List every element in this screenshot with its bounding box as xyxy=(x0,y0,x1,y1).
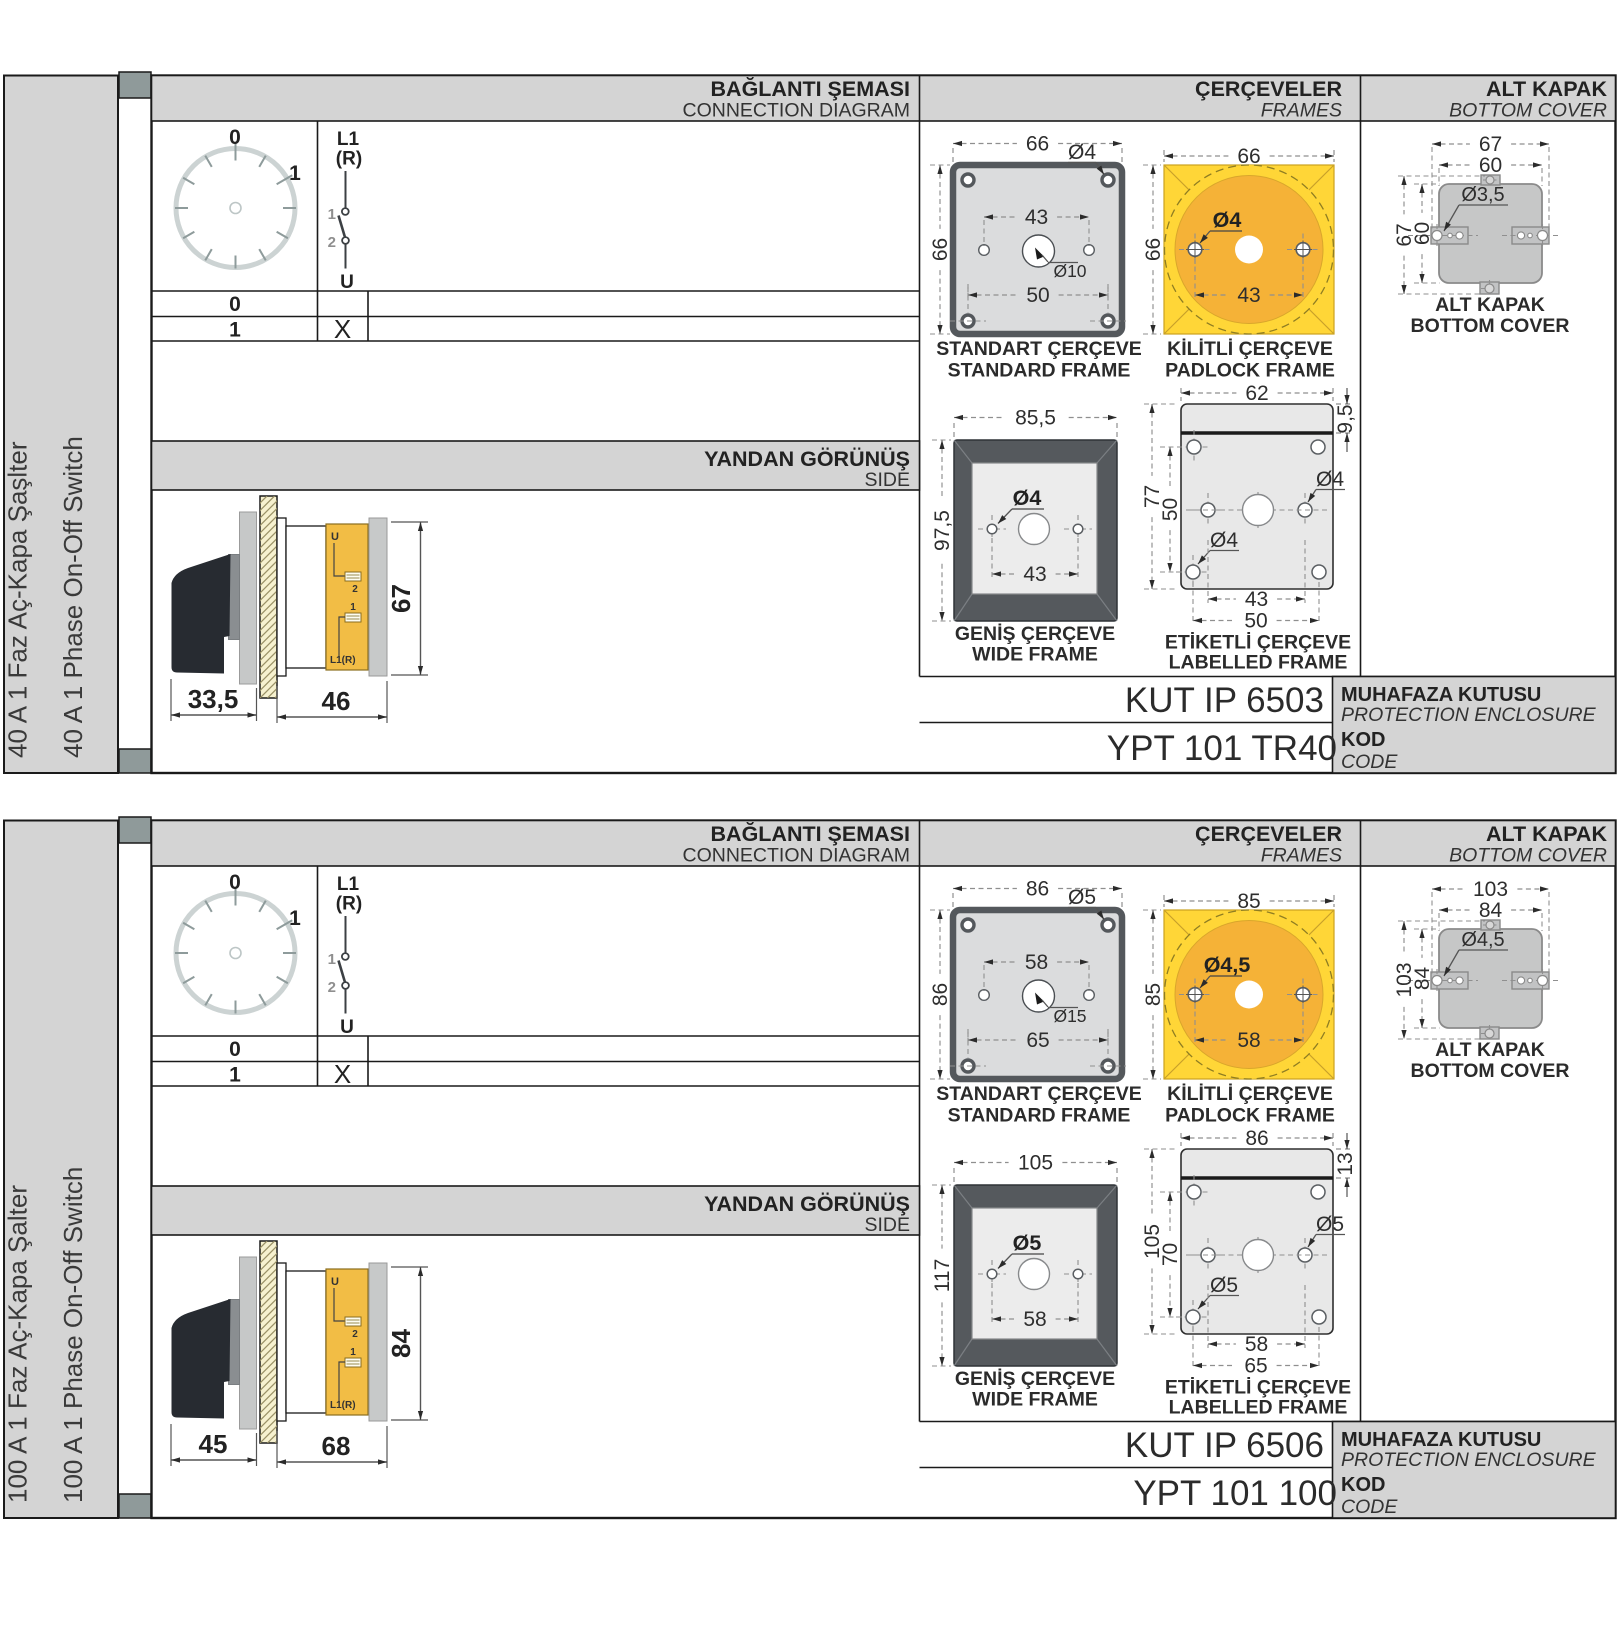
svg-text:Ø5: Ø5 xyxy=(1316,1213,1344,1236)
svg-text:1: 1 xyxy=(328,206,336,223)
svg-text:1: 1 xyxy=(229,1064,241,1087)
svg-text:50: 50 xyxy=(1159,498,1182,521)
svg-text:58: 58 xyxy=(1025,951,1048,974)
svg-text:Ø5: Ø5 xyxy=(1013,1231,1042,1255)
svg-text:LABELLED FRAME: LABELLED FRAME xyxy=(1169,1397,1348,1419)
svg-text:Ø15: Ø15 xyxy=(1053,1006,1086,1026)
svg-text:U: U xyxy=(331,1276,339,1288)
svg-text:68: 68 xyxy=(322,1431,351,1461)
svg-text:2: 2 xyxy=(352,584,358,595)
svg-text:40 A 1 Phase On-Off Switch: 40 A 1 Phase On-Off Switch xyxy=(58,436,88,758)
svg-text:ÇERÇEVELER: ÇERÇEVELER xyxy=(1195,822,1342,846)
svg-text:(R): (R) xyxy=(336,149,362,170)
svg-text:CODE: CODE xyxy=(1341,1496,1398,1518)
svg-text:9,5: 9,5 xyxy=(1334,404,1357,433)
svg-text:BOTTOM COVER: BOTTOM COVER xyxy=(1449,100,1607,122)
svg-text:BOTTOM COVER: BOTTOM COVER xyxy=(1449,845,1607,867)
svg-text:65: 65 xyxy=(1244,1355,1267,1378)
svg-text:85,5: 85,5 xyxy=(1015,407,1056,430)
svg-text:67: 67 xyxy=(1479,133,1502,156)
svg-text:ALT KAPAK: ALT KAPAK xyxy=(1486,822,1607,846)
svg-text:GENİŞ ÇERÇEVE: GENİŞ ÇERÇEVE xyxy=(955,1367,1115,1390)
svg-text:LABELLED FRAME: LABELLED FRAME xyxy=(1169,652,1348,674)
svg-text:Ø10: Ø10 xyxy=(1053,261,1086,281)
svg-text:85: 85 xyxy=(1142,983,1165,1006)
svg-text:MUHAFAZA KUTUSU: MUHAFAZA KUTUSU xyxy=(1341,1429,1541,1451)
svg-text:84: 84 xyxy=(1479,899,1503,922)
svg-text:YPT 101 100: YPT 101 100 xyxy=(1133,1474,1337,1513)
svg-text:86: 86 xyxy=(1026,878,1049,901)
svg-text:1: 1 xyxy=(289,907,301,930)
svg-text:KUT IP 6506: KUT IP 6506 xyxy=(1125,1426,1324,1465)
svg-text:84: 84 xyxy=(386,1329,416,1358)
svg-text:40 A 1 Faz Aç-Kapa Şaşlter: 40 A 1 Faz Aç-Kapa Şaşlter xyxy=(3,441,33,758)
svg-text:KİLİTLİ ÇERÇEVE: KİLİTLİ ÇERÇEVE xyxy=(1167,1082,1333,1105)
svg-text:0: 0 xyxy=(229,871,241,894)
svg-text:U: U xyxy=(340,272,354,293)
svg-text:60: 60 xyxy=(1411,222,1434,245)
svg-text:PROTECTION ENCLOSURE: PROTECTION ENCLOSURE xyxy=(1341,704,1597,726)
svg-text:1: 1 xyxy=(229,319,241,342)
svg-text:50: 50 xyxy=(1244,610,1267,633)
svg-text:Ø4,5: Ø4,5 xyxy=(1461,929,1504,951)
svg-text:100 A 1 Faz Aç-Kapa Şalter: 100 A 1 Faz Aç-Kapa Şalter xyxy=(3,1185,33,1503)
svg-text:58: 58 xyxy=(1023,1308,1046,1331)
svg-text:58: 58 xyxy=(1237,1029,1260,1052)
svg-text:YPT 101 TR40: YPT 101 TR40 xyxy=(1107,729,1337,768)
svg-text:86: 86 xyxy=(929,983,952,1006)
svg-text:X: X xyxy=(334,314,351,344)
svg-text:MUHAFAZA KUTUSU: MUHAFAZA KUTUSU xyxy=(1341,684,1541,706)
svg-text:1: 1 xyxy=(328,951,336,968)
svg-text:0: 0 xyxy=(229,293,241,316)
svg-text:ALT KAPAK: ALT KAPAK xyxy=(1486,77,1607,101)
svg-text:(R): (R) xyxy=(336,894,362,915)
svg-text:46: 46 xyxy=(322,686,351,716)
svg-text:KUT IP 6503: KUT IP 6503 xyxy=(1125,681,1324,720)
svg-text:ÇERÇEVELER: ÇERÇEVELER xyxy=(1195,77,1342,101)
svg-text:ALT KAPAK: ALT KAPAK xyxy=(1435,294,1545,316)
svg-text:66: 66 xyxy=(1026,133,1049,156)
svg-text:66: 66 xyxy=(929,238,952,261)
svg-text:U: U xyxy=(331,531,339,543)
svg-text:L1: L1 xyxy=(337,874,360,895)
svg-text:117: 117 xyxy=(931,1259,954,1292)
svg-text:Ø3,5: Ø3,5 xyxy=(1461,184,1504,206)
svg-text:103: 103 xyxy=(1473,878,1508,901)
svg-text:Ø4: Ø4 xyxy=(1316,468,1344,491)
svg-text:BOTTOM COVER: BOTTOM COVER xyxy=(1411,315,1570,337)
svg-text:CONNECTION DIAGRAM: CONNECTION DIAGRAM xyxy=(682,100,910,122)
svg-text:PADLOCK FRAME: PADLOCK FRAME xyxy=(1165,360,1335,382)
svg-text:43: 43 xyxy=(1025,206,1048,229)
svg-text:1: 1 xyxy=(350,602,356,613)
svg-text:13: 13 xyxy=(1334,1152,1357,1175)
svg-text:X: X xyxy=(334,1059,351,1089)
svg-text:Ø5: Ø5 xyxy=(1210,1274,1238,1297)
svg-text:WIDE FRAME: WIDE FRAME xyxy=(972,644,1098,666)
svg-text:105: 105 xyxy=(1018,1152,1053,1175)
svg-text:Ø4,5: Ø4,5 xyxy=(1204,953,1251,977)
svg-text:YANDAN GÖRÜNÜŞ: YANDAN GÖRÜNÜŞ xyxy=(704,446,910,471)
svg-text:43: 43 xyxy=(1237,284,1260,307)
svg-text:CONNECTION DIAGRAM: CONNECTION DIAGRAM xyxy=(682,845,910,867)
svg-text:PADLOCK FRAME: PADLOCK FRAME xyxy=(1165,1105,1335,1127)
svg-text:45: 45 xyxy=(199,1429,228,1459)
svg-text:0: 0 xyxy=(229,1038,241,1061)
svg-text:SIDE: SIDE xyxy=(864,1214,910,1236)
svg-text:L1(R): L1(R) xyxy=(330,1400,356,1411)
svg-text:KOD: KOD xyxy=(1341,729,1385,751)
svg-text:2: 2 xyxy=(328,234,336,251)
svg-text:100 A 1 Phase On-Off Switch: 100 A 1 Phase On-Off Switch xyxy=(58,1167,88,1503)
svg-text:CODE: CODE xyxy=(1341,751,1398,773)
svg-text:97,5: 97,5 xyxy=(931,510,954,551)
svg-text:43: 43 xyxy=(1245,588,1268,611)
svg-text:BAĞLANTI ŞEMASI: BAĞLANTI ŞEMASI xyxy=(711,76,910,101)
svg-text:STANDARD FRAME: STANDARD FRAME xyxy=(948,360,1131,382)
svg-text:Ø4: Ø4 xyxy=(1213,208,1242,232)
svg-text:Ø4: Ø4 xyxy=(1068,141,1096,164)
svg-text:1: 1 xyxy=(350,1347,356,1358)
svg-text:1: 1 xyxy=(289,162,301,185)
svg-text:50: 50 xyxy=(1026,284,1049,307)
svg-text:2: 2 xyxy=(328,979,336,996)
svg-text:43: 43 xyxy=(1023,563,1046,586)
svg-text:PROTECTION ENCLOSURE: PROTECTION ENCLOSURE xyxy=(1341,1449,1597,1471)
svg-text:YANDAN GÖRÜNÜŞ: YANDAN GÖRÜNÜŞ xyxy=(704,1191,910,1216)
svg-text:Ø4: Ø4 xyxy=(1013,486,1042,510)
svg-text:STANDART ÇERÇEVE: STANDART ÇERÇEVE xyxy=(936,338,1141,360)
svg-text:65: 65 xyxy=(1026,1029,1049,1052)
svg-text:66: 66 xyxy=(1237,145,1260,168)
svg-text:KOD: KOD xyxy=(1341,1474,1385,1496)
svg-text:ETİKETLİ ÇERÇEVE: ETİKETLİ ÇERÇEVE xyxy=(1165,1376,1351,1399)
svg-text:62: 62 xyxy=(1245,382,1268,405)
svg-text:33,5: 33,5 xyxy=(188,684,239,714)
svg-text:BOTTOM COVER: BOTTOM COVER xyxy=(1411,1060,1570,1082)
svg-text:Ø5: Ø5 xyxy=(1068,886,1096,909)
svg-text:2: 2 xyxy=(352,1329,358,1340)
svg-text:L1(R): L1(R) xyxy=(330,655,356,666)
svg-text:66: 66 xyxy=(1142,238,1165,261)
svg-text:70: 70 xyxy=(1159,1243,1182,1266)
svg-text:67: 67 xyxy=(386,584,416,613)
svg-text:BAĞLANTI ŞEMASI: BAĞLANTI ŞEMASI xyxy=(711,821,910,846)
svg-text:58: 58 xyxy=(1245,1333,1268,1356)
svg-text:ETİKETLİ ÇERÇEVE: ETİKETLİ ÇERÇEVE xyxy=(1165,631,1351,654)
svg-text:GENİŞ ÇERÇEVE: GENİŞ ÇERÇEVE xyxy=(955,622,1115,645)
svg-text:86: 86 xyxy=(1245,1127,1268,1150)
svg-text:STANDARD FRAME: STANDARD FRAME xyxy=(948,1105,1131,1127)
svg-text:85: 85 xyxy=(1237,890,1260,913)
svg-text:U: U xyxy=(340,1017,354,1038)
svg-text:SIDE: SIDE xyxy=(864,469,910,491)
svg-text:60: 60 xyxy=(1479,154,1502,177)
svg-text:KİLİTLİ ÇERÇEVE: KİLİTLİ ÇERÇEVE xyxy=(1167,337,1333,360)
svg-text:Ø4: Ø4 xyxy=(1210,529,1238,552)
svg-text:STANDART ÇERÇEVE: STANDART ÇERÇEVE xyxy=(936,1083,1141,1105)
svg-text:L1: L1 xyxy=(337,129,360,150)
svg-text:0: 0 xyxy=(229,126,241,149)
svg-text:ALT KAPAK: ALT KAPAK xyxy=(1435,1039,1545,1061)
svg-text:WIDE FRAME: WIDE FRAME xyxy=(972,1389,1098,1411)
svg-text:FRAMES: FRAMES xyxy=(1261,845,1342,867)
svg-text:FRAMES: FRAMES xyxy=(1261,100,1342,122)
svg-text:84: 84 xyxy=(1411,967,1434,991)
